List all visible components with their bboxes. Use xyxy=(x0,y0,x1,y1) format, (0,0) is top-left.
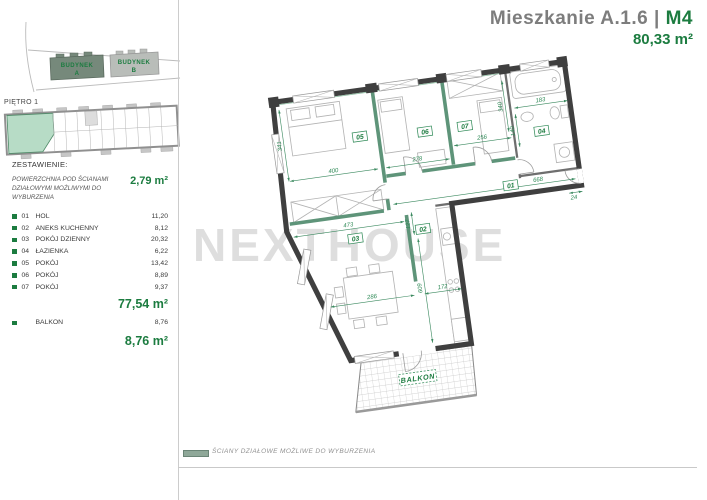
room-bullet-icon xyxy=(12,261,17,266)
room-name: POKÓJ xyxy=(36,272,155,279)
demolishable-wall-swatch xyxy=(183,450,209,457)
room-no: 01 xyxy=(22,213,36,220)
dim-668: 668 xyxy=(533,177,544,184)
footer-legend-text: ŚCIANY DZIAŁOWE MOŻLIWE DO WYBURZENIA xyxy=(212,448,375,455)
floor-plan: BALKON xyxy=(262,46,617,432)
room-label-07: 07 xyxy=(457,120,473,131)
room-no: 03 xyxy=(22,236,36,243)
room-name: POKÓJ xyxy=(36,284,155,291)
room-bullet-icon xyxy=(12,285,17,290)
room-label-06: 06 xyxy=(417,126,433,137)
room-area: 8,12 xyxy=(155,225,168,232)
room-area: 9,37 xyxy=(155,284,168,291)
apartment-title-gray: Mieszkanie A.1.6 xyxy=(490,8,648,29)
apartment-area: 80,33 m² xyxy=(490,31,693,48)
apartment-title: Mieszkanie A.1.6 | M4 xyxy=(490,8,693,30)
apartment-unit: M4 xyxy=(666,8,693,29)
balkon-bullet-icon xyxy=(12,321,17,326)
footer-divider xyxy=(178,467,697,468)
room-bullet-icon xyxy=(12,249,17,254)
dim-473: 473 xyxy=(343,222,354,229)
building-a-label-line1: BUDYNEK xyxy=(61,63,94,69)
dim-183: 183 xyxy=(535,97,546,104)
svg-text:05: 05 xyxy=(356,134,365,142)
room-area: 6,22 xyxy=(155,248,168,255)
site-and-floor-maps: BUDYNEK A BUDYNEK B PIĘTRO 1 xyxy=(0,14,182,179)
title-separator: | xyxy=(654,8,666,29)
dim-400: 400 xyxy=(328,168,339,175)
room-name: POKÓJ xyxy=(36,260,151,267)
demolition-area: 2,79 m² xyxy=(130,175,168,202)
room-bullet-icon xyxy=(12,226,17,231)
dim-line-127 xyxy=(411,212,414,235)
legend: ZESTAWIENIE: POWIERZCHNIA POD ŚCIANAMI D… xyxy=(12,160,168,348)
dim-140: 140 xyxy=(510,125,517,136)
room-bullet-icon xyxy=(12,273,17,278)
dim-340: 340 xyxy=(497,101,504,112)
building-b: BUDYNEK B xyxy=(110,49,159,77)
room-area: 20,32 xyxy=(151,236,168,243)
room-area: 11,20 xyxy=(151,213,168,220)
building-a: BUDYNEK A xyxy=(50,52,104,80)
room-no: 06 xyxy=(22,272,36,279)
dim-341: 341 xyxy=(277,141,284,152)
table-row: 06 POKÓJ 8,89 xyxy=(12,269,168,281)
building-b-label-line1: BUDYNEK xyxy=(118,60,151,66)
dim-24: 24 xyxy=(569,195,578,202)
room-no: 05 xyxy=(22,260,36,267)
floor-overview xyxy=(5,102,179,160)
dim-127: 127 xyxy=(405,218,412,229)
svg-text:03: 03 xyxy=(351,235,360,243)
dining-table xyxy=(332,262,400,331)
panel-divider xyxy=(178,0,179,500)
dim-609: 609 xyxy=(417,282,424,293)
header: Mieszkanie A.1.6 | M4 80,33 m² xyxy=(490,8,693,48)
room-name: ŁAZIENKA xyxy=(36,248,155,255)
balkon-total: 8,76 m² xyxy=(12,334,168,348)
demolition-note: POWIERZCHNIA POD ŚCIANAMI DZIAŁOWYMI MOŻ… xyxy=(12,175,110,202)
balkon-area: 8,76 xyxy=(155,319,168,326)
overview-staircase xyxy=(85,111,98,126)
sidebar: BUDYNEK A BUDYNEK B PIĘTRO 1 xyxy=(0,0,178,500)
rooms-total: 77,54 m² xyxy=(12,297,168,311)
room-label-03: 03 xyxy=(348,233,364,244)
balkon-row: BALKON 8,76 xyxy=(12,317,168,329)
room-bullet-icon xyxy=(12,214,17,219)
window-room05-top xyxy=(293,90,335,103)
room-label-05: 05 xyxy=(352,131,368,142)
svg-text:06: 06 xyxy=(421,129,430,137)
bed-room06 xyxy=(378,97,410,154)
road-left xyxy=(26,22,34,92)
floor-label: PIĘTRO 1 xyxy=(4,99,38,106)
toilet xyxy=(549,105,569,120)
room-no: 04 xyxy=(22,248,36,255)
table-row: 04 ŁAZIENKA 6,22 xyxy=(12,246,168,258)
window-room05-left xyxy=(272,134,285,174)
room-name: POKÓJ DZIENNY xyxy=(36,236,151,243)
svg-text:04: 04 xyxy=(538,128,547,136)
room-no: 07 xyxy=(22,284,36,291)
room-label-02: 02 xyxy=(415,223,431,234)
table-row: 07 POKÓJ 9,37 xyxy=(12,281,168,293)
legend-title: ZESTAWIENIE: xyxy=(12,160,168,169)
dim-line-24 xyxy=(569,191,582,193)
window-room06-top xyxy=(379,78,419,91)
demolition-note-row: POWIERZCHNIA POD ŚCIANAMI DZIAŁOWYMI MOŻ… xyxy=(12,175,168,202)
room-area: 8,89 xyxy=(155,272,168,279)
sink xyxy=(520,111,534,122)
room-no: 02 xyxy=(22,225,36,232)
room-name: ANEKS KUCHENNY xyxy=(36,225,155,232)
building-b-label-line2: B xyxy=(132,68,137,74)
table-row: 02 ANEKS KUCHENNY 8,12 xyxy=(12,222,168,234)
door-entry xyxy=(565,168,584,185)
page: Mieszkanie A.1.6 | M4 80,33 m² BUDYNEK A xyxy=(0,0,707,500)
svg-text:02: 02 xyxy=(419,226,428,234)
svg-text:01: 01 xyxy=(507,182,516,190)
door-bathroom xyxy=(518,158,534,174)
room-area: 13,42 xyxy=(151,260,168,267)
table-row: 01 HOL 11,20 xyxy=(12,210,168,222)
room-bullet-icon xyxy=(12,238,17,243)
bed-room05 xyxy=(286,101,346,156)
washing-machine xyxy=(554,142,575,163)
room-label-04: 04 xyxy=(534,125,550,136)
table-row: 03 POKÓJ DZIENNY 20,32 xyxy=(12,234,168,246)
room-name: HOL xyxy=(36,213,152,220)
building-a-label-line2: A xyxy=(75,71,80,77)
table-row: 05 POKÓJ 13,42 xyxy=(12,258,168,270)
balkon-name: BALKON xyxy=(36,319,155,326)
room-label-01: 01 xyxy=(503,180,519,191)
svg-text:07: 07 xyxy=(461,123,470,131)
